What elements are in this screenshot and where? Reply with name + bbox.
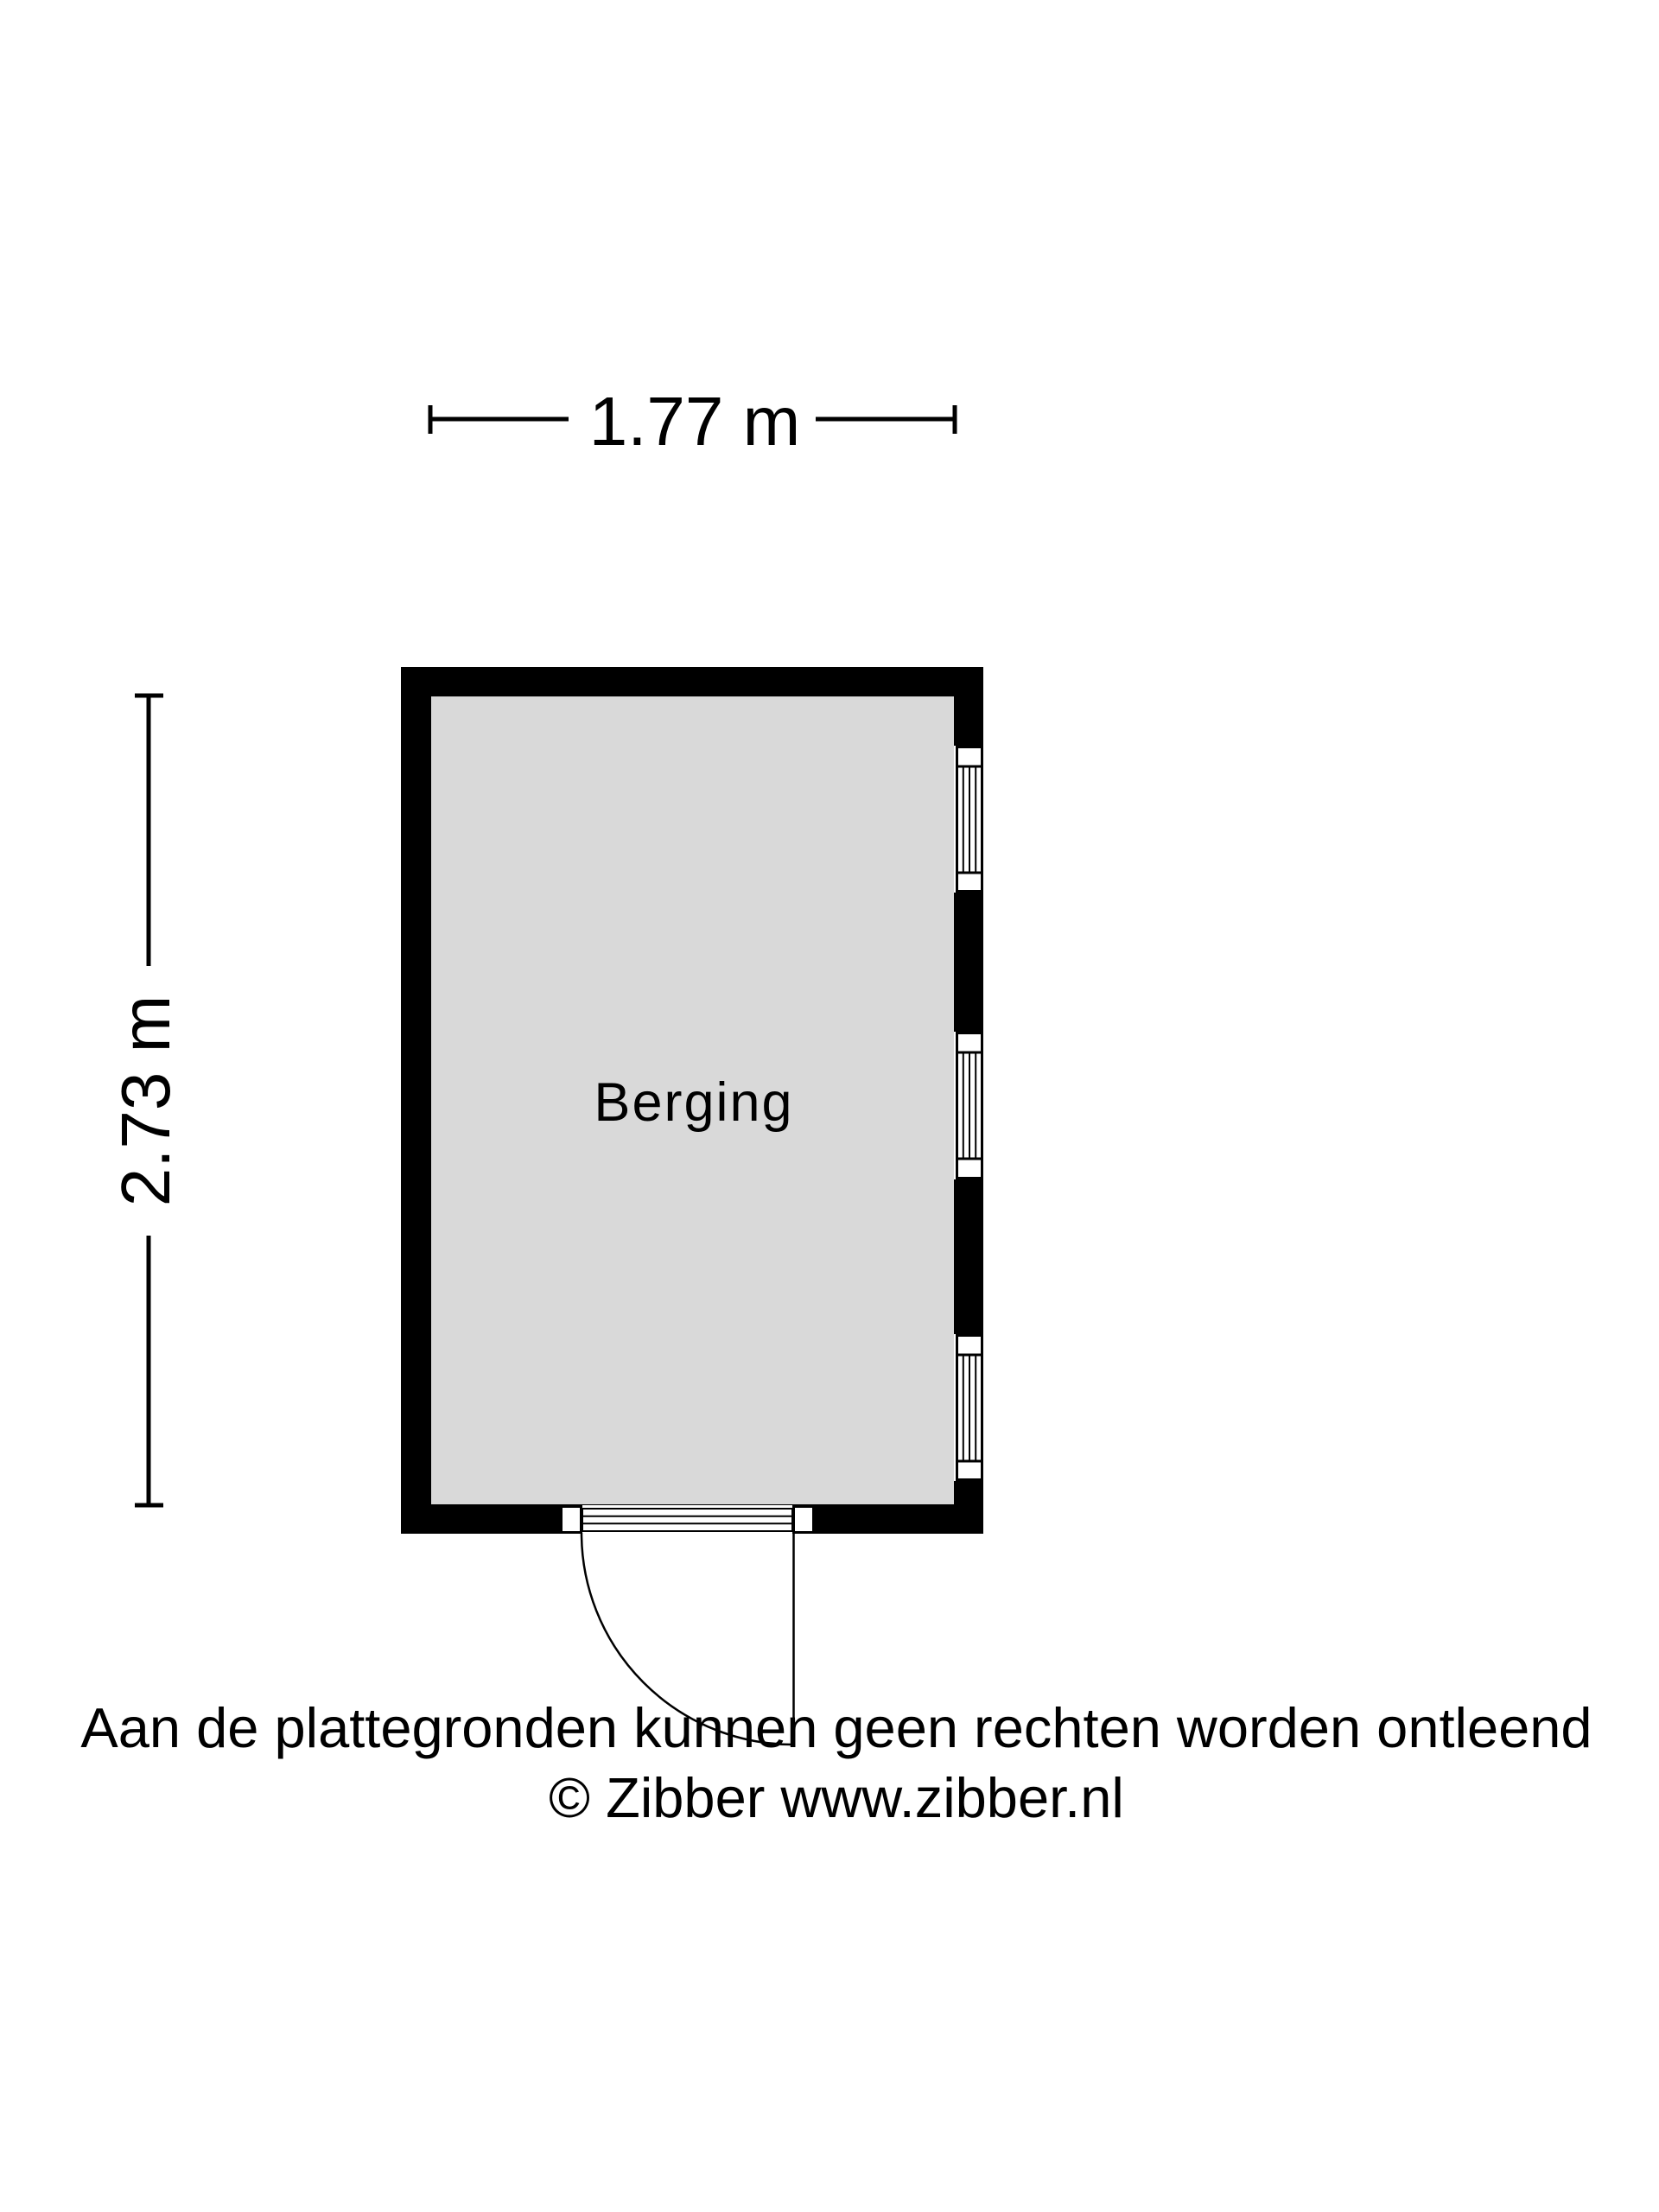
door-slab [582,1509,792,1531]
copyright-text: © Zibber www.zibber.nl [549,1766,1124,1829]
wall-top [401,667,983,696]
wall-bottom-right [814,1505,983,1534]
wall-right-segment-2 [954,1179,983,1334]
window-right-1 [954,746,983,893]
wall-left [401,667,430,1534]
dimension-width: 1.77 m [430,383,955,460]
wall-right-stub-top [954,696,983,746]
door-post-right [794,1507,814,1533]
floorplan-svg: 1.77 m 2.73 m [0,0,1659,2212]
dimension-height: 2.73 m [107,696,184,1505]
window-right-3 [954,1334,983,1481]
room-label: Berging [594,1072,793,1133]
dimension-width-label: 1.77 m [589,383,801,460]
disclaimer-text: Aan de plattegronden kunnen geen rechten… [80,1696,1592,1759]
floorplan-page: 1.77 m 2.73 m [0,0,1659,2212]
window-right-2 [954,1032,983,1179]
wall-bottom-left [401,1505,560,1534]
wall-right-segment-1 [954,893,983,1032]
wall-right-stub-bottom [954,1481,983,1505]
dimension-height-label: 2.73 m [107,995,184,1207]
door-post-left [562,1507,582,1533]
